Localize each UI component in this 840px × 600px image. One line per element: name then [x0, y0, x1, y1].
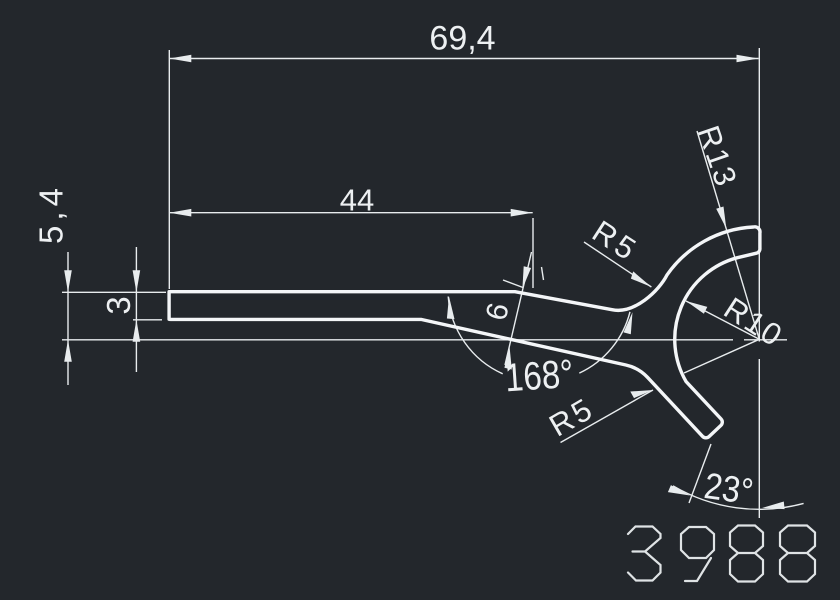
svg-text:44: 44: [340, 183, 374, 218]
svg-text:23°: 23°: [702, 466, 756, 513]
svg-text:3: 3: [100, 296, 137, 314]
svg-text:168°: 168°: [503, 351, 574, 400]
svg-text:69,4: 69,4: [429, 20, 495, 58]
svg-text:5,4: 5,4: [33, 183, 70, 244]
